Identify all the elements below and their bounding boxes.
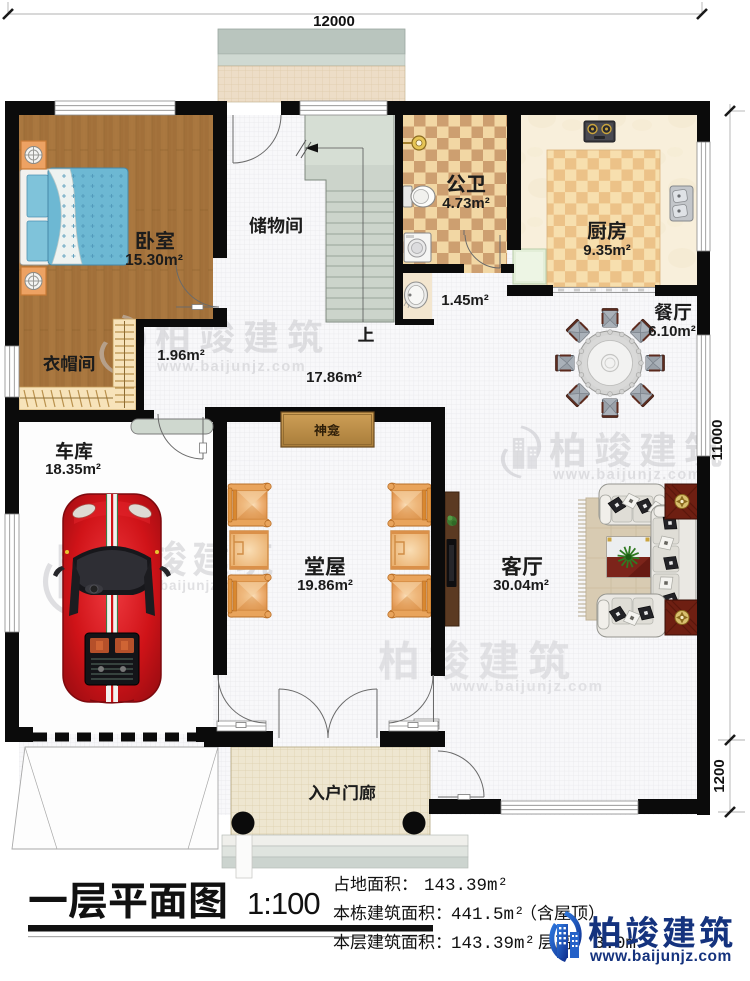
svg-text:17.86m²: 17.86m² — [306, 369, 362, 386]
svg-text:www.baijunjz.com: www.baijunjz.com — [449, 678, 603, 695]
svg-text:18.35m²: 18.35m² — [45, 461, 101, 478]
svg-text:www.baijunjz.com: www.baijunjz.com — [552, 467, 702, 483]
svg-text:1200: 1200 — [711, 759, 728, 792]
svg-text:www.baijunjz.com: www.baijunjz.com — [589, 948, 732, 965]
svg-text:4.73m²: 4.73m² — [442, 195, 490, 212]
svg-text:9.35m²: 9.35m² — [583, 242, 631, 259]
svg-text:143.39m²: 143.39m² — [424, 876, 508, 896]
svg-text:11000: 11000 — [709, 420, 726, 461]
svg-text:441.5m²: 441.5m² — [451, 905, 525, 925]
svg-text:1.45m²: 1.45m² — [441, 292, 489, 309]
svg-text:1:100: 1:100 — [247, 886, 320, 921]
svg-text:1.96m²: 1.96m² — [157, 347, 205, 364]
svg-text:12000: 12000 — [313, 13, 355, 30]
svg-text:6.10m²: 6.10m² — [648, 323, 696, 340]
svg-text:143.39m²: 143.39m² — [451, 934, 535, 954]
svg-text:19.86m²: 19.86m² — [297, 577, 353, 594]
svg-text:30.04m²: 30.04m² — [493, 577, 549, 594]
svg-text:15.30m²: 15.30m² — [125, 252, 183, 269]
